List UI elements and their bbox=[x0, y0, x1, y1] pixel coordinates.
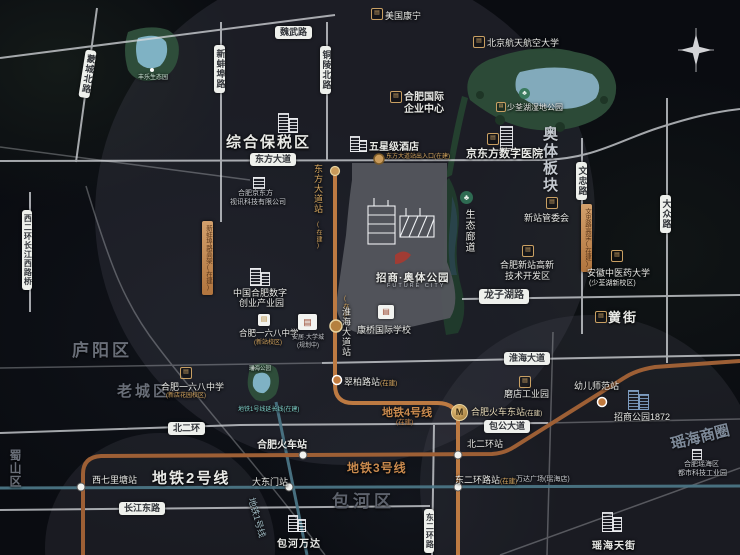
intl-center-icon: ▤ bbox=[390, 91, 402, 103]
station-youershifan: 幼儿师范站 bbox=[574, 379, 619, 392]
poi-boe-hospital: 京东方数字医院 bbox=[466, 145, 543, 161]
baohe-wanda-icon bbox=[288, 515, 298, 532]
district-baohe: 包河区 bbox=[332, 487, 395, 512]
station-xiqilitang: 西七里塘站 bbox=[92, 473, 137, 486]
park-yaohai-label: 瑶海公园 bbox=[249, 364, 271, 372]
school168a-icon: ▤ bbox=[258, 314, 270, 326]
station-dongerhuan-status: (在建) bbox=[500, 478, 517, 485]
location-map: 东方大道 淮海大道 北二环 长江东路 包公大道 龙子湖路 魏武路 文忠路 大众路… bbox=[0, 0, 740, 555]
station-dadongmen: 大东门站 bbox=[252, 475, 288, 488]
station-beierhuan: 北二环站 bbox=[467, 437, 503, 450]
road-pill-tonglingbeilu: 铜陵北路 bbox=[320, 46, 331, 94]
park-fengle-label: 丰乐生态园 bbox=[138, 72, 168, 81]
station-hefei-east-rail: 合肥火车东站(在建) bbox=[471, 405, 542, 418]
five-star-hotel-icon2 bbox=[359, 140, 367, 152]
eco-corridor-tree-icon: ♣ bbox=[460, 191, 473, 204]
road-pill-dongfangdadao: 东方大道 bbox=[250, 153, 296, 166]
station-dongfangdadao-vertical: 东方大道站 bbox=[312, 164, 325, 214]
station-dongfangdadao-status: (在建) bbox=[314, 222, 323, 250]
boe-hospital-gold-icon: ▤ bbox=[487, 133, 499, 145]
poi-yaohai-tech-line2: 都市科技工业园 bbox=[678, 468, 727, 478]
zs-park-1872-icon bbox=[628, 390, 639, 410]
poi-hitech-line2: 技术开发区 bbox=[505, 269, 550, 282]
metro-logo-icon: M bbox=[451, 404, 468, 421]
poi-zs-park-1872: 招商公园1872 bbox=[614, 410, 670, 423]
road-pill-xierhuan-bridge: 西二环长江西路桥 bbox=[22, 210, 32, 290]
baohe-wanda-icon2 bbox=[298, 519, 306, 532]
station-cuibailu-status: (在建) bbox=[380, 380, 397, 387]
road-pill-huaihaidadao: 淮海大道 bbox=[504, 352, 550, 365]
station-dongerhuan-name: 东二环路站 bbox=[455, 475, 500, 485]
poi-hengjie: 黉街 bbox=[608, 307, 638, 326]
station-cuibailu-name: 翠柏路站 bbox=[344, 377, 380, 387]
tcm-univ-icon: ▤ bbox=[611, 250, 623, 262]
metro-line3-label: 地铁3号线 bbox=[347, 459, 407, 476]
poi-school168b-line2: (新店花园校区) bbox=[166, 390, 206, 399]
poi-wanda-plaza: 万达广场(瑶海店) bbox=[516, 474, 570, 484]
beihang-icon: ▤ bbox=[473, 36, 485, 48]
school168b-icon: ▤ bbox=[180, 367, 192, 379]
station-huaihaidadao-vertical: 淮海大道站 bbox=[340, 307, 353, 357]
badge-xinbengbu-viaduct: 新蚌埠路高架(在建) bbox=[202, 221, 213, 295]
poi-school168a-line2: (新站校区) bbox=[254, 337, 282, 346]
road-pill-xinbengbulu: 新蚌埠路 bbox=[214, 45, 225, 93]
poi-digital-park-line2: 创业产业园 bbox=[239, 296, 284, 309]
station-cuibailu: 翠柏路站(在建) bbox=[344, 375, 397, 388]
park-shaoquan-label: 少荃湖湿地公园 bbox=[507, 102, 563, 113]
hengjie-icon: ▤ bbox=[595, 311, 607, 323]
road-pill-beierhuan: 北二环 bbox=[168, 422, 205, 435]
district-luyang: 庐阳区 bbox=[72, 336, 132, 361]
district-shushan: 蜀山区 bbox=[7, 449, 24, 488]
metro-line4-status: (在建) bbox=[396, 416, 413, 426]
poi-xinzhan-gov: 新站管委会 bbox=[524, 211, 569, 224]
shaoquan-tree-icon: ♣ bbox=[519, 88, 530, 99]
poi-anju-line2: (规划中) bbox=[297, 340, 319, 349]
anju-school-icon: ▤ bbox=[298, 314, 317, 330]
project-name-en: FUTURE CITY bbox=[387, 283, 445, 289]
road-pill-dazhonglu: 大众路 bbox=[660, 195, 671, 233]
road-pill-wenzhonglu: 文忠路 bbox=[576, 162, 587, 200]
station-hefei-rail: 合肥火车站 bbox=[257, 436, 307, 451]
poi-corning: 美国康宁 bbox=[385, 9, 421, 22]
zs-park-1872-icon2 bbox=[639, 394, 649, 410]
badge-wenzhong-viaduct: 文忠路高架(在建) bbox=[581, 204, 592, 272]
poi-beihang: 北京航天航空大学 bbox=[487, 36, 559, 49]
digital-park-icon bbox=[250, 268, 261, 286]
poi-five-star-hotel: 五星级酒店 bbox=[369, 138, 419, 153]
corning-icon: ▤ bbox=[371, 8, 383, 20]
station-hefei-east-status: (在建) bbox=[525, 410, 542, 417]
poi-baohe-wanda: 包河万达 bbox=[277, 535, 321, 550]
poi-modian: 磨店工业园 bbox=[504, 387, 549, 400]
poi-yaohai-tianjie: 瑶海天街 bbox=[592, 537, 636, 552]
yaohai-tianjie-icon2 bbox=[613, 517, 622, 532]
road-pill-changjiangdonglu: 长江东路 bbox=[119, 502, 165, 515]
hitech-zone-icon: ▤ bbox=[522, 245, 534, 257]
poi-eco-corridor: 生态廊道 bbox=[461, 209, 476, 253]
road-pill-longzihulu: 龙子湖路 bbox=[479, 289, 529, 304]
road-pill-dongerhuanlu: 东二环路 bbox=[424, 509, 434, 553]
digital-park-icon2 bbox=[261, 272, 270, 286]
bonded-zone-icon bbox=[278, 113, 289, 133]
road-pill-weiwulu: 魏武路 bbox=[275, 26, 312, 39]
poi-boe-company-line2: 视讯科技有限公司 bbox=[230, 197, 286, 207]
yaohai-tianjie-icon bbox=[602, 512, 613, 532]
poi-tcm-univ-line2: (少荃湖新校区) bbox=[589, 278, 636, 288]
metro-line2-label: 地铁2号线 bbox=[152, 467, 230, 488]
radius-circle-southwest bbox=[45, 433, 275, 555]
project-parcel bbox=[336, 163, 455, 334]
compass-icon bbox=[678, 28, 714, 72]
kangqiao-school-icon: ▤ bbox=[378, 305, 394, 319]
poi-intl-center-line2: 企业中心 bbox=[404, 100, 444, 115]
metro-line1-ext-label: 地铁1号线延长线(在建) bbox=[238, 404, 299, 413]
shaoquan-park-icon: ▤ bbox=[496, 102, 506, 112]
road-pill-baogongdadao: 包公大道 bbox=[484, 420, 530, 433]
station-dongerhuan: 东二环路站(在建) bbox=[455, 473, 517, 486]
poi-kangqiao-school: 康桥国际学校 bbox=[357, 323, 411, 336]
station-hefei-east-name: 合肥火车东站 bbox=[471, 407, 525, 417]
poi-bonded-zone: 综合保税区 bbox=[226, 131, 311, 152]
xinzhan-gov-icon: ▤ bbox=[546, 197, 558, 209]
